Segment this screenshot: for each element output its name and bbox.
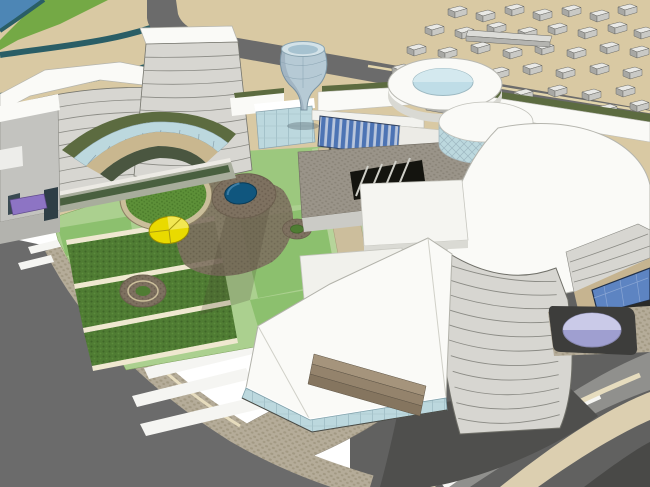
slab-roof bbox=[140, 26, 238, 44]
architectural-render bbox=[0, 0, 650, 487]
white-box-upper bbox=[360, 180, 468, 246]
planter-ring-large bbox=[120, 275, 166, 307]
small-white-box bbox=[0, 146, 23, 170]
cone-shadow bbox=[287, 122, 319, 130]
